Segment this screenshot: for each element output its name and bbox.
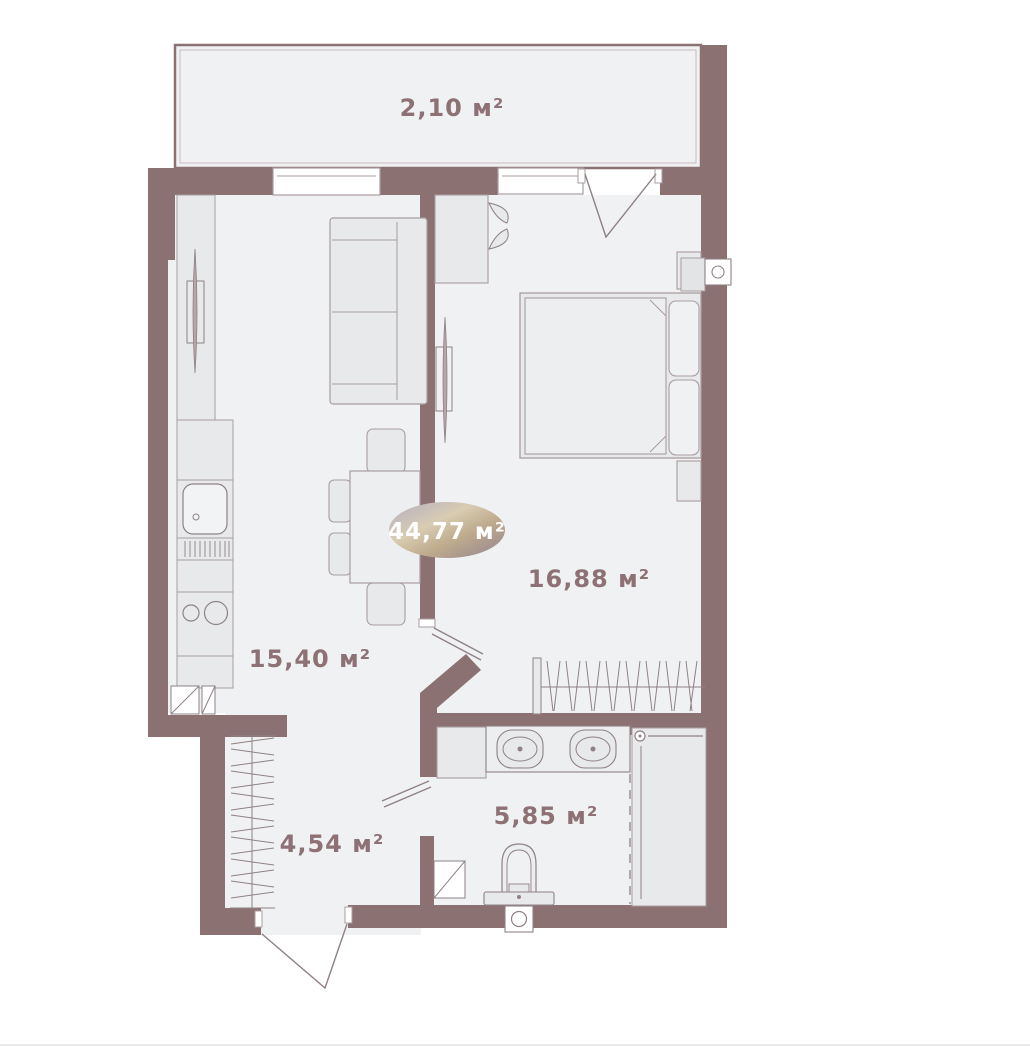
- total-area-badge: 44,77 м²: [388, 502, 506, 558]
- bed: [520, 293, 701, 458]
- bathroom-area-label: 5,85 м²: [494, 802, 599, 830]
- vanity-double-sink: [486, 726, 630, 772]
- bathroom-vent-shaft: [434, 861, 465, 898]
- floor-plan-page: 2,10 м² 15,40 м² 16,88 м² 4,54 м² 5,85 м…: [0, 0, 1030, 1050]
- mattress: [525, 298, 666, 454]
- entrance-frame-right: [345, 907, 352, 923]
- wall-hallway-left: [200, 737, 225, 913]
- wall-bathroom-left-upper: [420, 737, 437, 777]
- total-area-label: 44,77 м²: [388, 519, 506, 545]
- sofa: [330, 218, 427, 404]
- washing-machine: [437, 727, 486, 778]
- drain-hatch: [505, 906, 533, 932]
- hallway-floor: [225, 713, 421, 935]
- living-room-window: [273, 168, 380, 195]
- dining-chair: [329, 480, 351, 522]
- entrance-frame-left: [255, 911, 262, 927]
- floor-plan-drawing: 2,10 м² 15,40 м² 16,88 м² 4,54 м² 5,85 м…: [0, 0, 1030, 1050]
- partition-end-cap: [419, 619, 435, 627]
- kitchen-vent-shaft: [171, 686, 215, 714]
- balcony-area-label: 2,10 м²: [400, 94, 505, 122]
- wall-bathroom-left-lower: [420, 836, 434, 905]
- balcony-door-frame-right: [655, 169, 662, 183]
- desk: [435, 195, 488, 283]
- living-kitchen-area-label: 15,40 м²: [249, 645, 371, 673]
- pillow: [669, 380, 699, 455]
- shower: [630, 728, 706, 906]
- entrance-threshold-floor: [260, 920, 348, 935]
- wall-bottom: [348, 905, 727, 928]
- nightstand-bottom: [677, 461, 701, 501]
- balcony-door-frame-left: [578, 169, 585, 183]
- wall-right-upper: [701, 45, 727, 260]
- dining-chair: [367, 583, 405, 625]
- bedroom-window: [498, 168, 583, 194]
- pillow: [669, 301, 699, 376]
- hallway-area-label: 4,54 м²: [280, 830, 385, 858]
- wall-entrance-left: [200, 908, 261, 935]
- dining-chair: [367, 429, 405, 473]
- wall-top-middle: [380, 168, 498, 195]
- page-bottom-divider: [0, 1044, 1030, 1046]
- dining-chair: [329, 533, 351, 575]
- bedroom-area-label: 16,88 м²: [528, 565, 650, 593]
